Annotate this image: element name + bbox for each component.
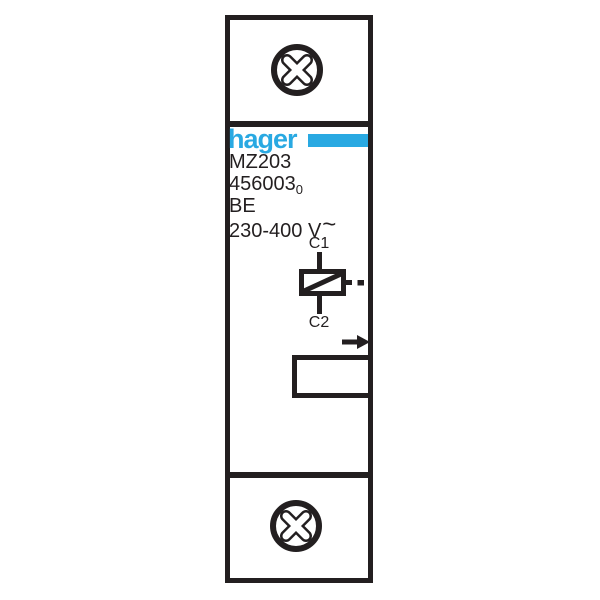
model-number: MZ203 <box>229 152 291 172</box>
hager-logo-bar <box>308 134 368 147</box>
label-window <box>292 355 373 398</box>
origin-code: BE <box>229 196 256 216</box>
bottom-section-separator <box>225 472 373 478</box>
phillips-screw-head-icon-bottom <box>266 496 326 556</box>
catalog-number-index: 0 <box>296 182 303 197</box>
catalog-number: 4560030 <box>229 174 303 196</box>
shunt-trip-coil-symbol-icon <box>296 248 370 316</box>
right-arrow-icon <box>340 333 372 351</box>
product-drawing: hager MZ203 4560030 BE 230-400 V~ C1 C2 <box>0 0 600 600</box>
hager-logo: hager <box>228 126 297 153</box>
ac-symbol: ~ <box>322 211 336 238</box>
catalog-number-main: 456003 <box>229 173 296 195</box>
terminal-label-c2: C2 <box>299 315 339 331</box>
phillips-screw-head-icon-top <box>267 40 327 100</box>
